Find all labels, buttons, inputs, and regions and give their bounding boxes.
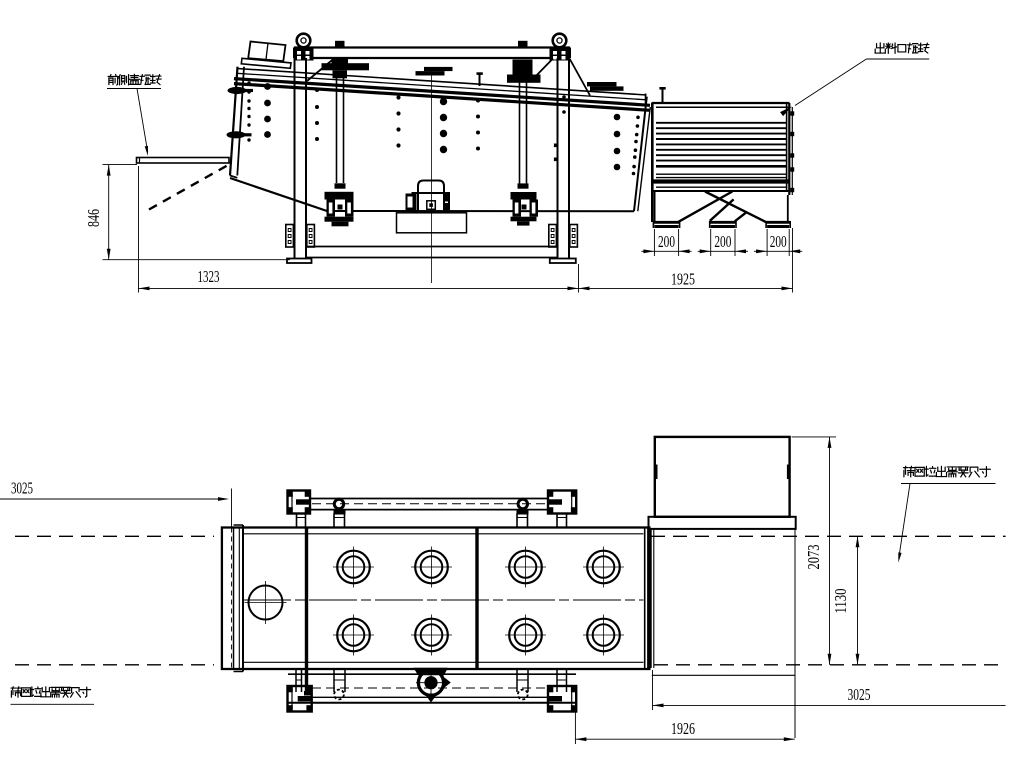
svg-text:1925: 1925 <box>671 270 695 289</box>
svg-text:200: 200 <box>770 232 787 251</box>
svg-text:2073: 2073 <box>804 545 823 570</box>
svg-text:3025: 3025 <box>848 685 871 704</box>
svg-text:1926: 1926 <box>671 719 695 738</box>
svg-text:200: 200 <box>658 232 675 251</box>
svg-text:200: 200 <box>714 232 731 251</box>
svg-text:846: 846 <box>84 209 103 227</box>
svg-text:1130: 1130 <box>831 589 850 614</box>
svg-text:3025: 3025 <box>11 479 33 498</box>
svg-text:1323: 1323 <box>198 267 220 286</box>
